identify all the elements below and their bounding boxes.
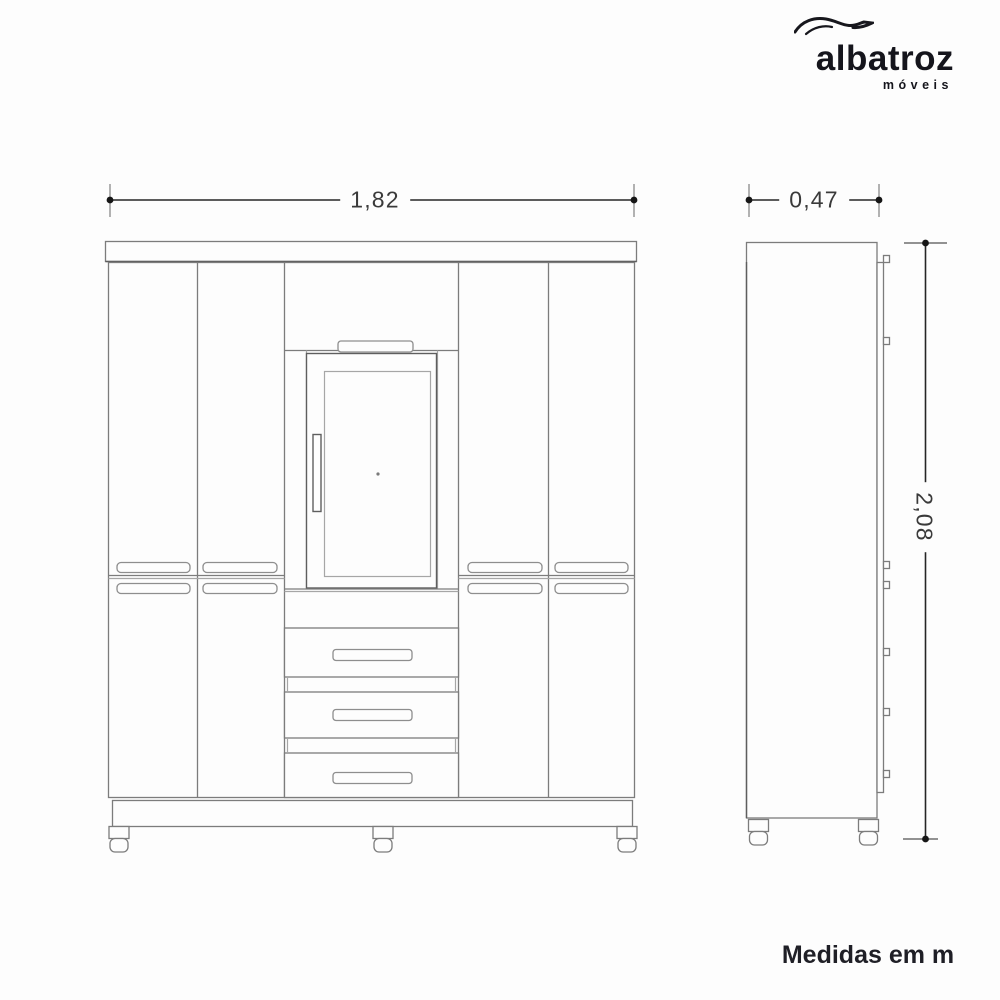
dimension-end-dot (631, 197, 638, 204)
foot (109, 827, 129, 853)
door-handle (117, 584, 190, 594)
hinge-mark (884, 562, 890, 569)
dimension-end-dot (746, 197, 753, 204)
dimension-end-dot (922, 240, 929, 247)
hinge-mark (884, 709, 890, 716)
door-handle (555, 584, 628, 594)
hinge-mark (884, 582, 890, 589)
mirror-center-dot (376, 472, 379, 475)
door-handle (203, 563, 277, 573)
brand-logo: albatroz móveis (790, 16, 954, 92)
dimension-end-dot (876, 197, 883, 204)
base-plinth (113, 801, 633, 827)
hinge-mark (884, 771, 890, 778)
brand-name: albatroz (790, 41, 954, 76)
hinge-mark (884, 649, 890, 656)
units-note: Medidas em m (782, 941, 954, 970)
dimension-end-dot (922, 836, 929, 843)
front-width-dimension-label: 1,82 (340, 186, 410, 215)
dimension-end-dot (107, 197, 114, 204)
hinge-mark (884, 256, 890, 263)
side-body (747, 243, 878, 819)
product-dimension-diagram: 1,82 0,47 2,08 albatroz móveis Medidas e… (0, 0, 1000, 1000)
foot (749, 820, 769, 846)
front-view (106, 242, 638, 853)
wardrobe-technical-drawing (0, 0, 1000, 1000)
mirror-door (307, 354, 437, 589)
side-height-dimension-label: 2,08 (910, 482, 939, 552)
top-cabinet-handle (338, 341, 413, 352)
side-depth-dimension-label: 0,47 (779, 186, 849, 215)
door-handle (555, 563, 628, 573)
foot (859, 820, 879, 846)
hinge-mark (884, 338, 890, 345)
drawer-handle (333, 650, 412, 661)
brand-tagline: móveis (790, 78, 953, 92)
door-handle (117, 563, 190, 573)
side-view (747, 243, 890, 846)
drawer-handle (333, 773, 412, 784)
door-handle (468, 563, 542, 573)
drawer-handle (333, 710, 412, 721)
door-handle (468, 584, 542, 594)
door-handle (203, 584, 277, 594)
side-door-edge (877, 263, 884, 793)
foot (373, 827, 393, 853)
albatross-swoosh-icon (794, 16, 874, 38)
foot (617, 827, 637, 853)
mirror-door-handle (313, 435, 321, 512)
top-crown-panel (106, 242, 637, 262)
